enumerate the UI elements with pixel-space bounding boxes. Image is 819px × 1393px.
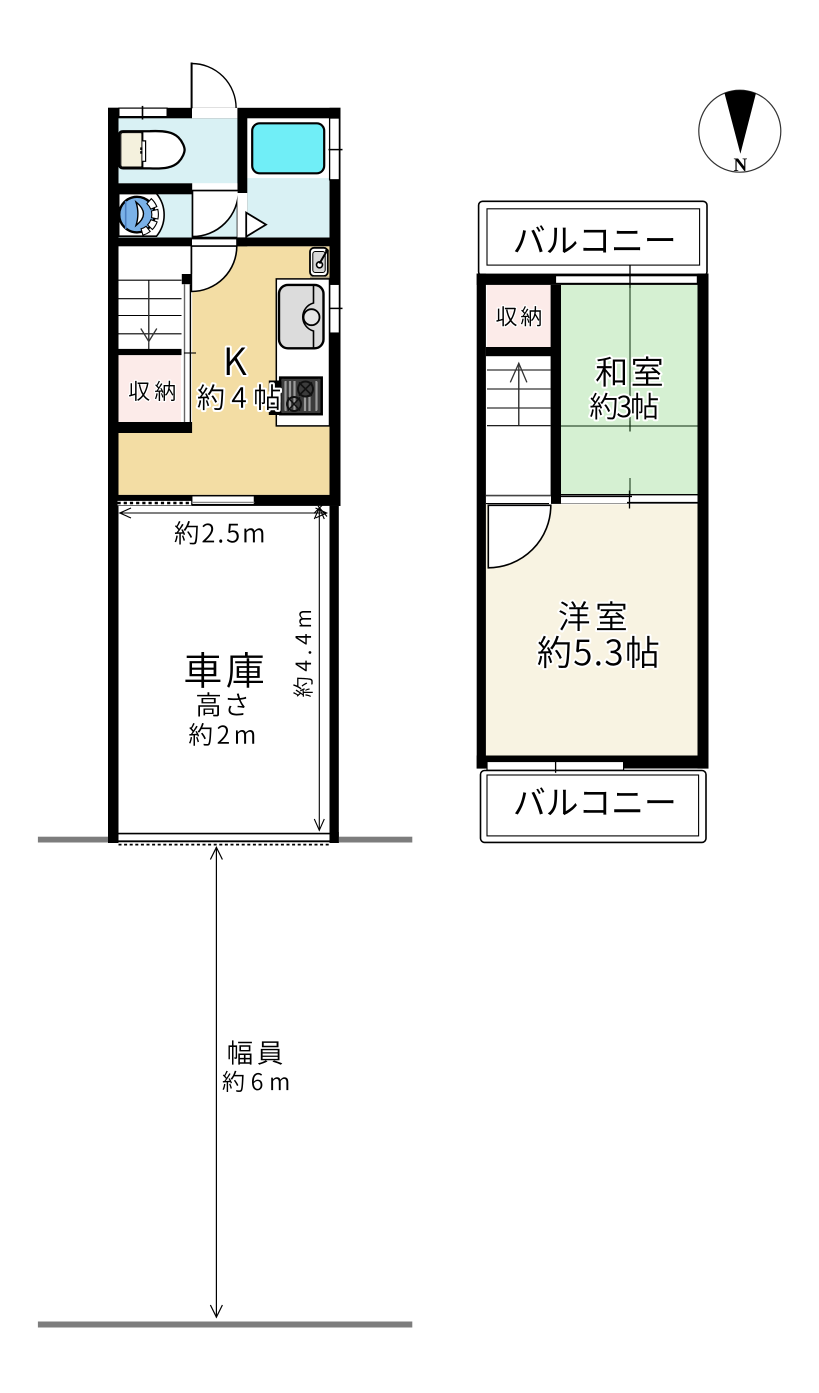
svg-text:N: N <box>734 155 748 176</box>
